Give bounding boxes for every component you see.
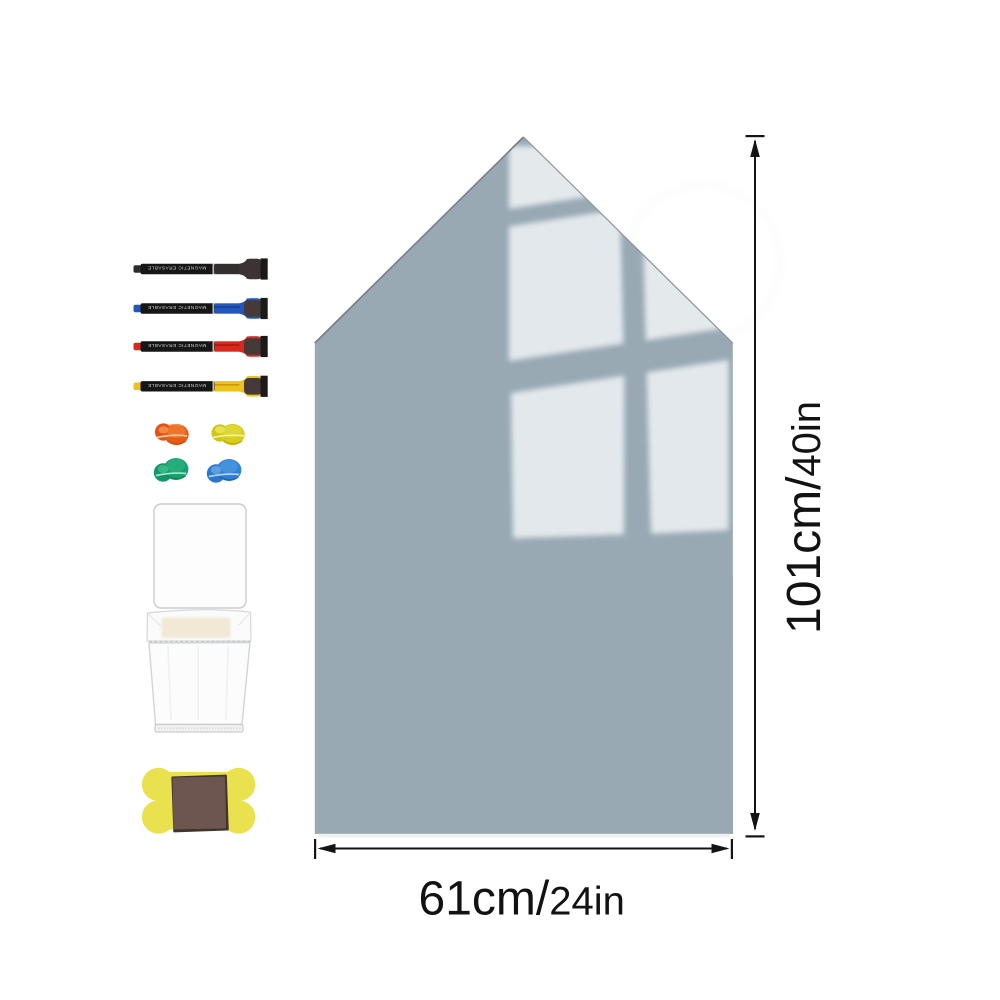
svg-text:MAGNETIC ERASABLE: MAGNETIC ERASABLE bbox=[148, 304, 207, 310]
svg-text:MAGNETIC ERASABLE: MAGNETIC ERASABLE bbox=[148, 382, 207, 388]
svg-text:61cm/24in: 61cm/24in bbox=[419, 873, 625, 926]
svg-text:MAGNETIC ERASABLE: MAGNETIC ERASABLE bbox=[148, 265, 207, 271]
svg-text:101cm/40in: 101cm/40in bbox=[778, 401, 831, 634]
svg-text:MAGNETIC ERASABLE: MAGNETIC ERASABLE bbox=[148, 342, 207, 348]
